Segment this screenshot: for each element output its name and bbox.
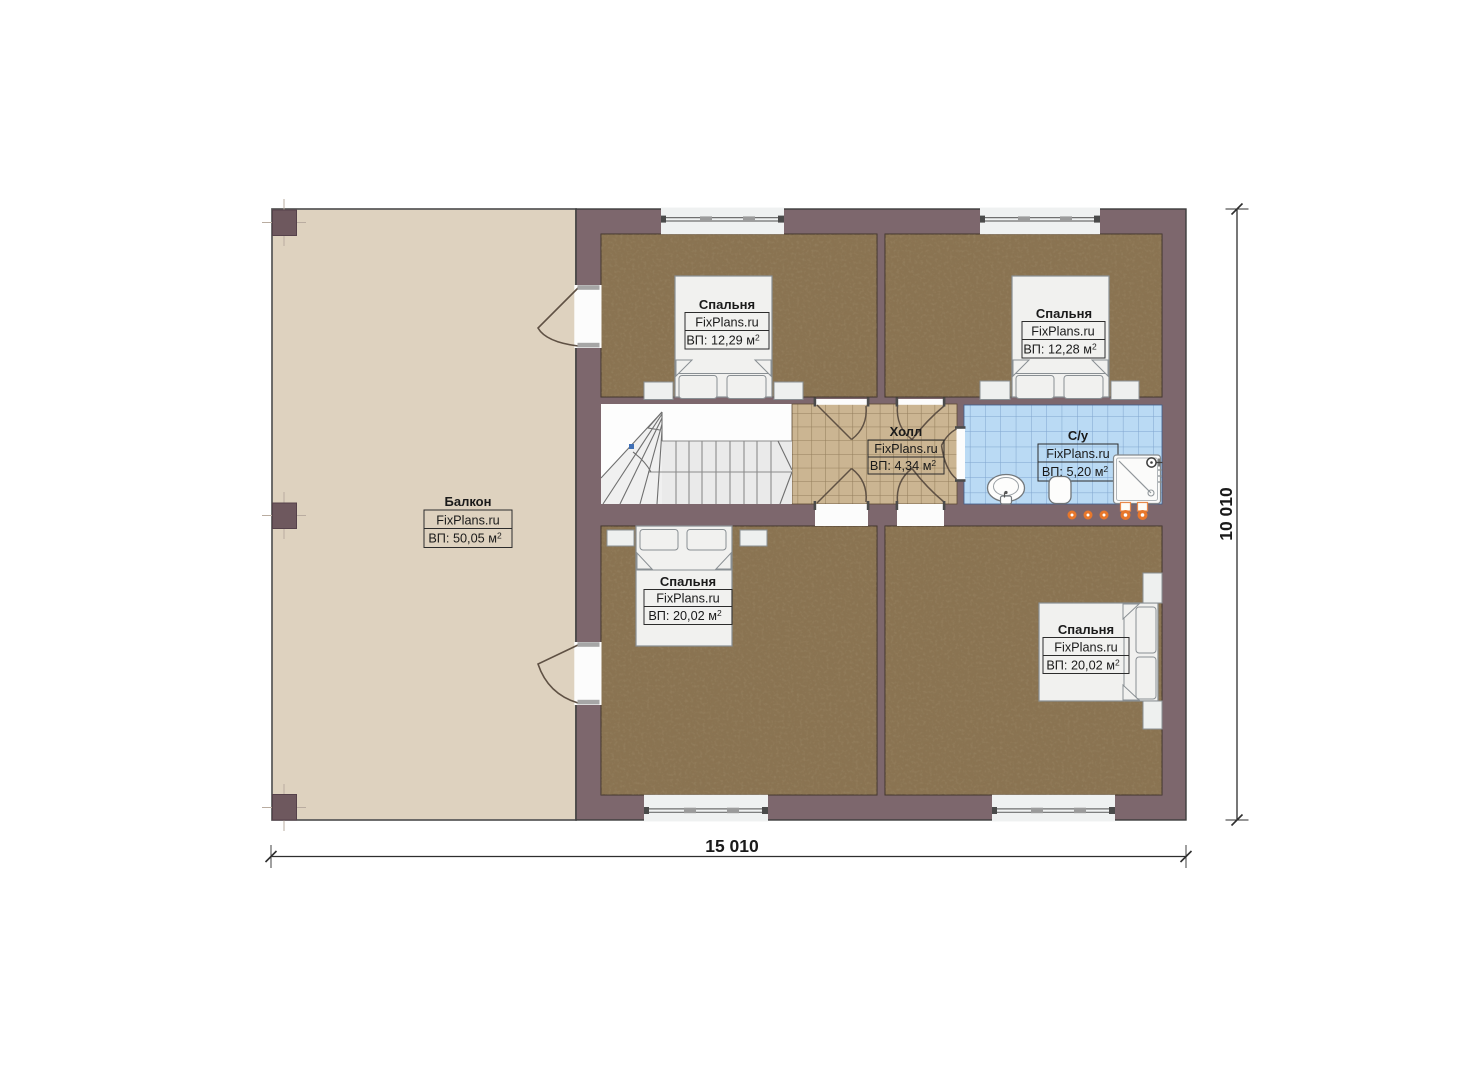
- svg-text:FixPlans.ru: FixPlans.ru: [695, 316, 758, 330]
- svg-text:ВП: 12,29 м2: ВП: 12,29 м2: [686, 333, 760, 348]
- svg-text:FixPlans.ru: FixPlans.ru: [436, 514, 499, 528]
- svg-text:Спальня: Спальня: [699, 297, 755, 312]
- svg-text:Холл: Холл: [890, 424, 923, 439]
- svg-text:ВП: 4,34 м2: ВП: 4,34 м2: [870, 458, 937, 473]
- svg-text:FixPlans.ru: FixPlans.ru: [1031, 325, 1094, 339]
- svg-text:FixPlans.ru: FixPlans.ru: [874, 442, 937, 456]
- svg-text:Спальня: Спальня: [660, 574, 716, 589]
- svg-text:Спальня: Спальня: [1036, 306, 1092, 321]
- svg-text:Спальня: Спальня: [1058, 622, 1114, 637]
- svg-text:FixPlans.ru: FixPlans.ru: [1046, 447, 1109, 461]
- svg-text:ВП: 5,20 м2: ВП: 5,20 м2: [1042, 464, 1109, 479]
- svg-text:FixPlans.ru: FixPlans.ru: [1054, 641, 1117, 655]
- svg-text:FixPlans.ru: FixPlans.ru: [656, 592, 719, 606]
- svg-text:ВП: 20,02 м2: ВП: 20,02 м2: [1046, 658, 1120, 673]
- svg-text:10 010: 10 010: [1216, 487, 1236, 541]
- svg-text:ВП: 50,05 м2: ВП: 50,05 м2: [428, 531, 502, 546]
- svg-text:ВП: 20,02 м2: ВП: 20,02 м2: [648, 608, 722, 623]
- svg-text:15 010: 15 010: [705, 836, 759, 856]
- svg-text:ВП: 12,28 м2: ВП: 12,28 м2: [1023, 342, 1097, 357]
- svg-text:С/у: С/у: [1068, 428, 1089, 443]
- svg-text:Балкон: Балкон: [445, 494, 492, 509]
